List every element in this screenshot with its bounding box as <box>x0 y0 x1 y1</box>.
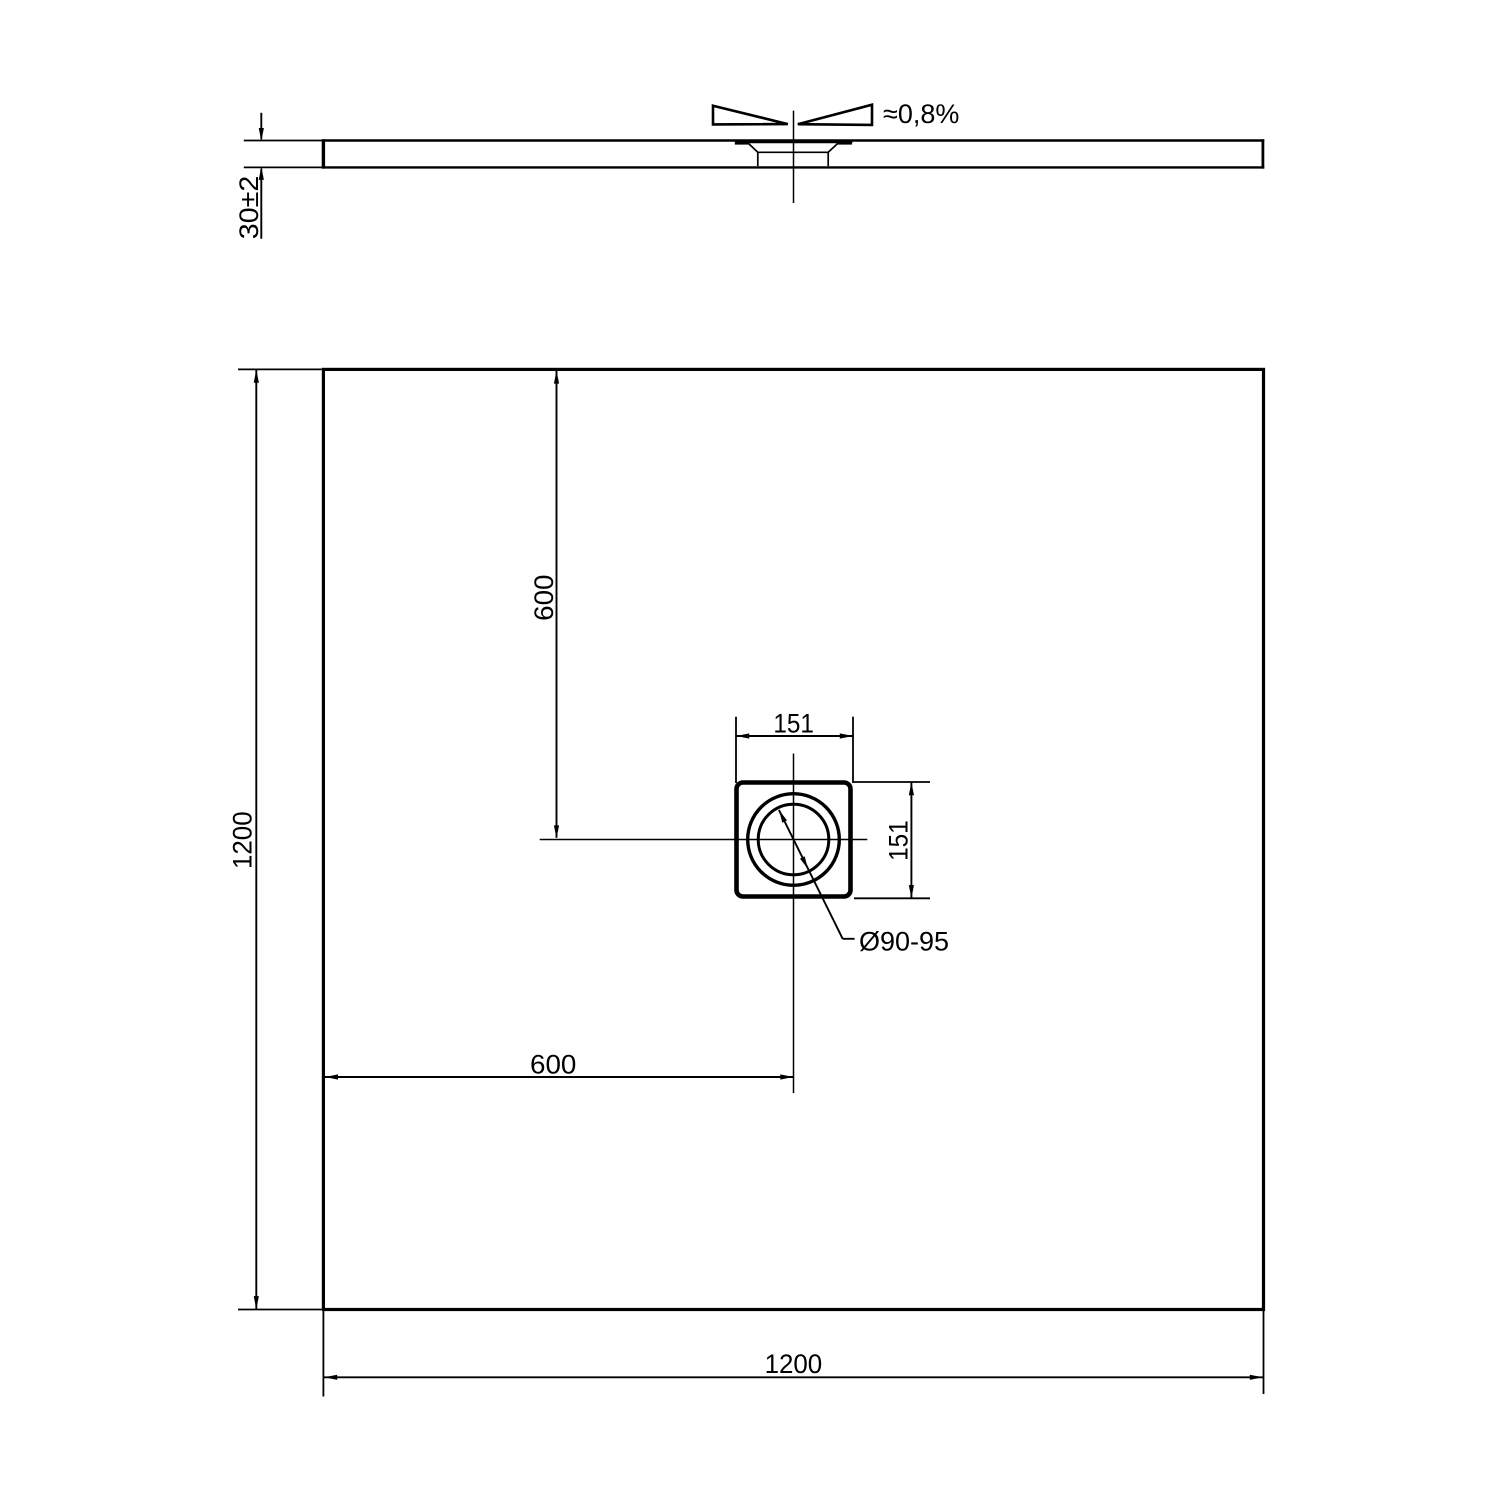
svg-text:151: 151 <box>884 820 913 861</box>
svg-text:600: 600 <box>530 1049 576 1080</box>
svg-text:600: 600 <box>528 575 559 621</box>
svg-text:1200: 1200 <box>765 1348 823 1379</box>
svg-text:≈0,8%: ≈0,8% <box>883 99 959 129</box>
svg-text:Ø90-95: Ø90-95 <box>859 926 949 956</box>
svg-text:1200: 1200 <box>227 811 258 869</box>
svg-text:151: 151 <box>773 709 814 738</box>
svg-text:30±2: 30±2 <box>234 176 264 239</box>
